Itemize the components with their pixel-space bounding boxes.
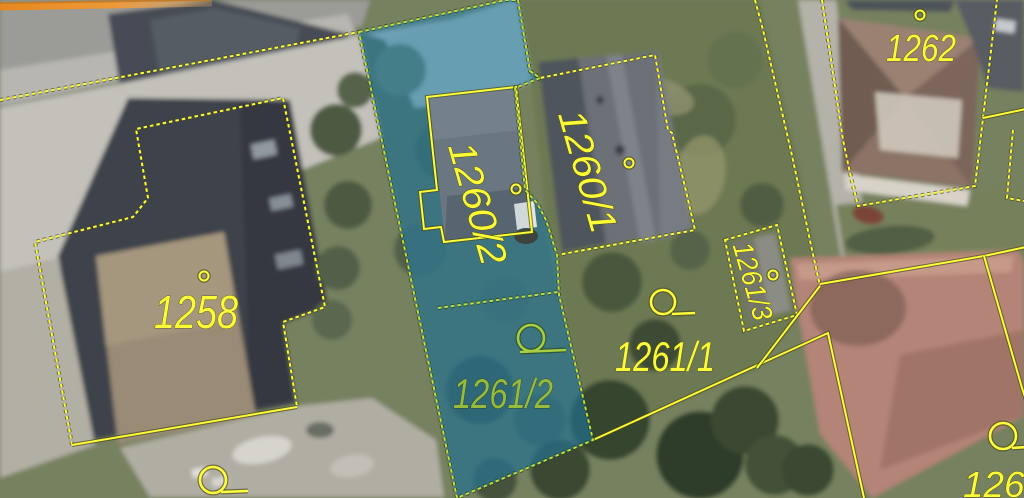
parcel-label-1261-1: 1261/1 xyxy=(615,333,715,380)
parcel-label-1262: 1262 xyxy=(886,28,956,70)
cadastral-map[interactable]: 1258 1260/1 1260/2 1261/1 1261/2 1261/3 … xyxy=(0,0,1024,498)
parcel-label-1261-2: 1261/2 xyxy=(453,370,553,417)
parcel-label-1263: 1263 xyxy=(963,464,1024,498)
cadastral-map-viewport[interactable]: 1258 1260/1 1260/2 1261/1 1261/2 1261/3 … xyxy=(0,0,1024,498)
parcel-label-1258: 1258 xyxy=(154,286,238,338)
